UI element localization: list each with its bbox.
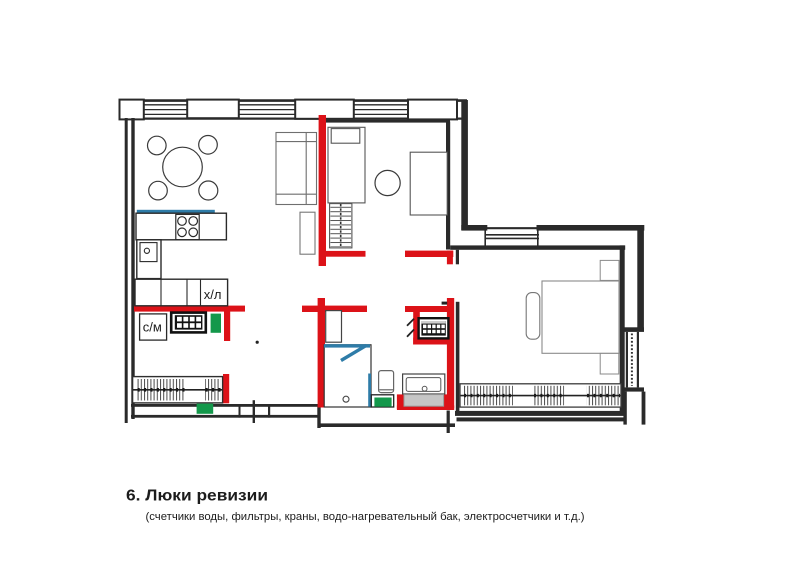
- svg-text:6. Люки ревизии: 6. Люки ревизии: [126, 488, 268, 505]
- svg-text:х/л: х/л: [204, 287, 222, 302]
- svg-text:(счетчики воды, фильтры, краны: (счетчики воды, фильтры, краны, водо-наг…: [146, 511, 585, 523]
- svg-text:с/м: с/м: [143, 320, 162, 335]
